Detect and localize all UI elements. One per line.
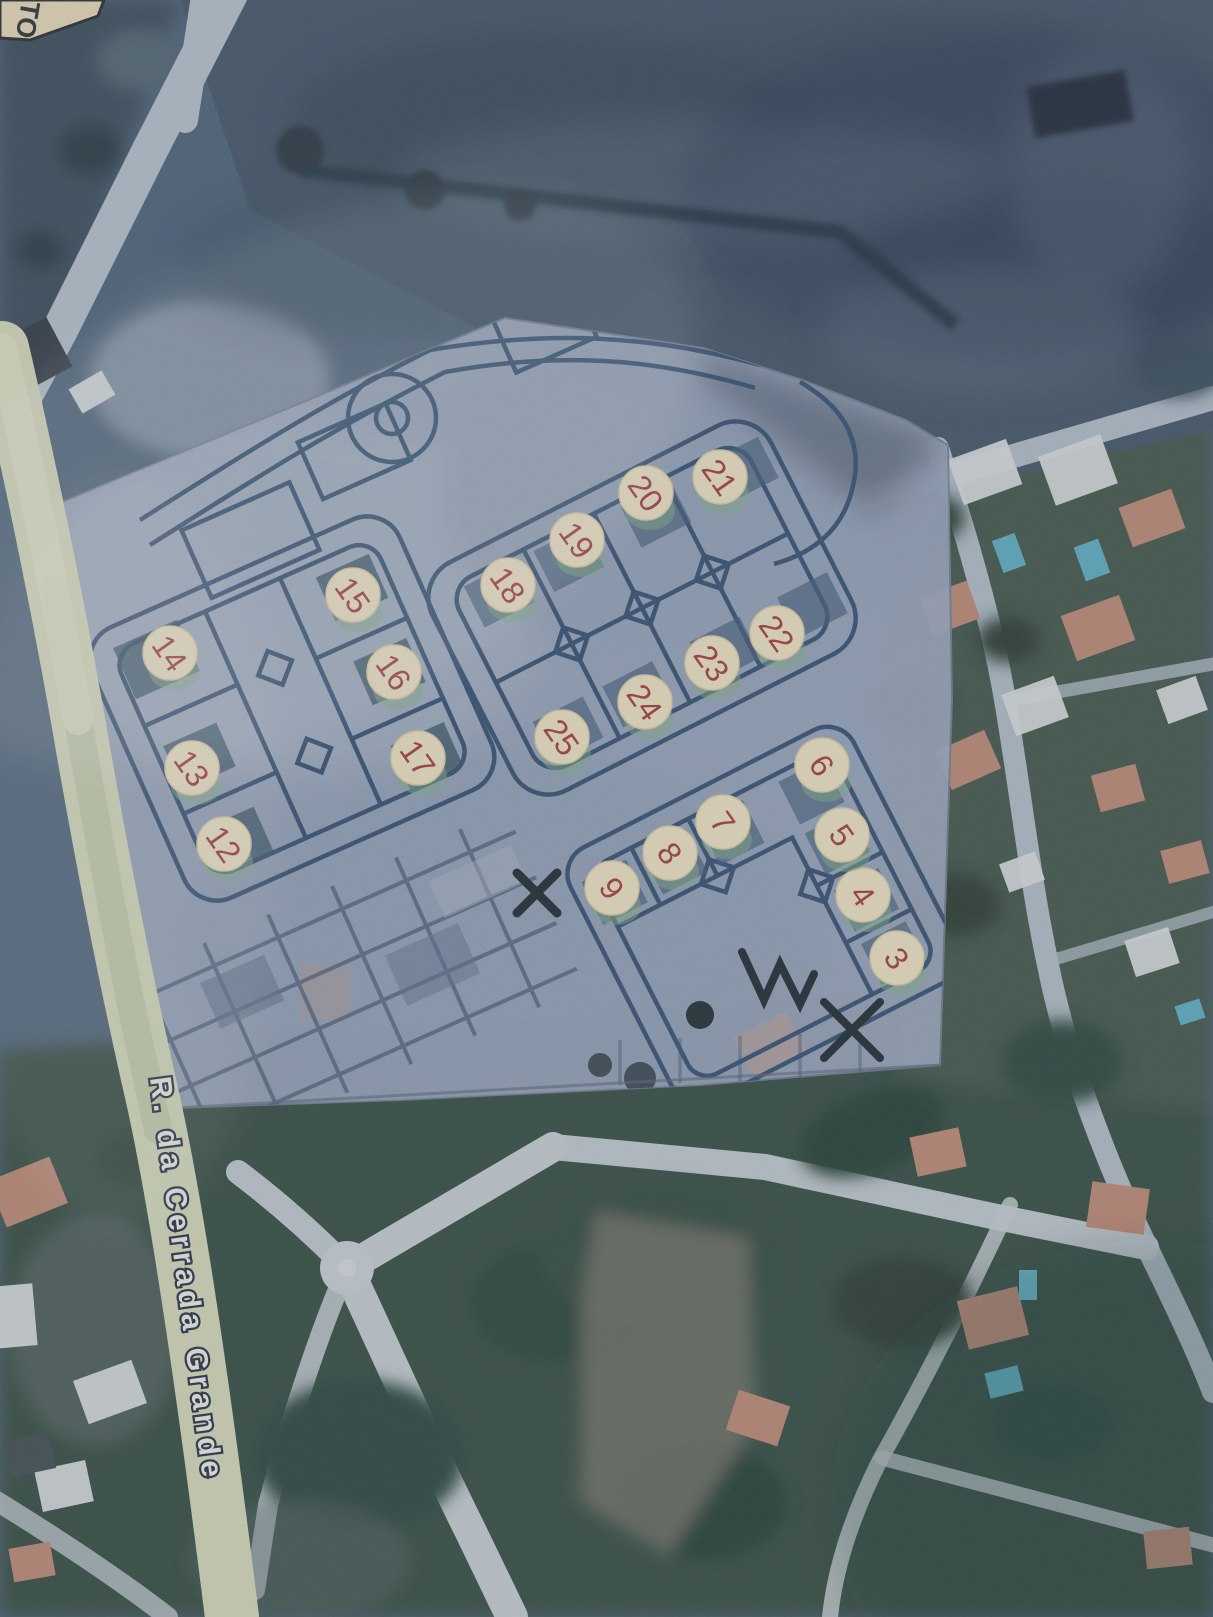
aerial-photo: R. da Cerrada Grande TO 3456789121314151… xyxy=(0,0,1213,1617)
aerial-map-photo: R. da Cerrada Grande TO 3456789121314151… xyxy=(0,0,1213,1617)
grain-overlay-light xyxy=(0,0,1213,1617)
